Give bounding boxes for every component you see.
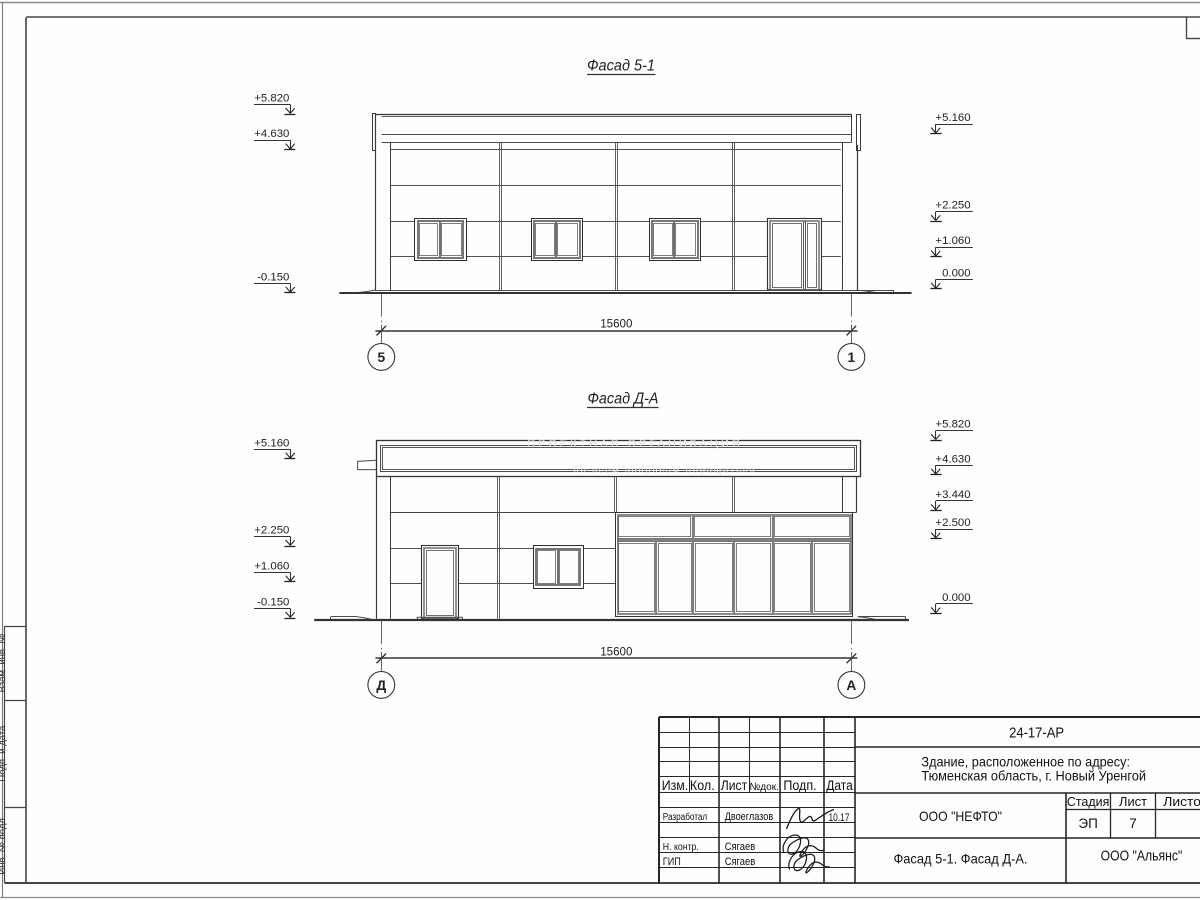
svg-text:ПРОЕКТНАЯ ОРГАНИЗАЦИЯ: ПРОЕКТНАЯ ОРГАНИЗАЦИЯ	[527, 438, 743, 450]
svg-text:0.000: 0.000	[942, 592, 971, 604]
svg-text:+2.500: +2.500	[935, 517, 970, 529]
svg-text:по всем вопросам обращаться: по всем вопросам обращаться	[574, 465, 757, 475]
svg-text:ООО "Альянс": ООО "Альянс"	[1101, 848, 1183, 864]
svg-text:ЭП: ЭП	[1078, 816, 1097, 831]
svg-text:+5.160: +5.160	[935, 112, 970, 124]
svg-text:№док.: №док.	[749, 781, 779, 793]
svg-text:Разработал: Разработал	[663, 811, 708, 823]
svg-text:1: 1	[848, 350, 856, 365]
svg-text:ГИП: ГИП	[663, 856, 681, 868]
svg-text:Инв. № подл.: Инв. № подл.	[0, 815, 8, 874]
svg-text:Фасад Д-А: Фасад Д-А	[588, 391, 659, 408]
svg-text:+2.250: +2.250	[935, 200, 970, 212]
svg-text:А: А	[846, 678, 856, 693]
svg-text:Дата: Дата	[826, 778, 853, 793]
svg-text:15600: 15600	[600, 318, 632, 331]
svg-text:0.000: 0.000	[942, 268, 971, 280]
svg-text:Д: Д	[376, 678, 386, 693]
svg-text:+2.250: +2.250	[254, 525, 289, 537]
svg-text:Кол.: Кол.	[690, 778, 715, 793]
svg-text:Лист: Лист	[721, 778, 748, 793]
svg-text:Двоеглазов: Двоеглазов	[725, 811, 774, 823]
svg-text:+4.630: +4.630	[254, 128, 289, 140]
svg-text:24-17-АР: 24-17-АР	[1009, 726, 1064, 742]
svg-text:+5.160: +5.160	[254, 437, 289, 449]
svg-text:+4.630: +4.630	[935, 453, 970, 465]
svg-text:Листов: Листов	[1163, 794, 1200, 809]
svg-text:ООО "НЕФТО": ООО "НЕФТО"	[919, 808, 1002, 824]
svg-text:Н. контр.: Н. контр.	[663, 842, 699, 853]
svg-text:5: 5	[377, 350, 385, 365]
svg-text:15600: 15600	[600, 645, 632, 658]
svg-text:+1.060: +1.060	[935, 235, 970, 247]
svg-text:+1.060: +1.060	[254, 560, 289, 572]
svg-text:Подп.: Подп.	[783, 778, 816, 793]
svg-text:-0.150: -0.150	[257, 271, 289, 283]
svg-text:Тюменская область, г. Новый Ур: Тюменская область, г. Новый Уренгой	[921, 767, 1146, 783]
svg-text:-0.150: -0.150	[257, 597, 289, 609]
svg-text:+5.820: +5.820	[935, 419, 970, 431]
svg-text:Сягаев: Сягаев	[725, 841, 756, 853]
svg-text:10.17: 10.17	[829, 812, 850, 824]
svg-text:+5.820: +5.820	[254, 93, 289, 105]
svg-text:Фасад 5-1. Фасад Д-А.: Фасад 5-1. Фасад Д-А.	[894, 850, 1028, 866]
svg-text:Фасад 5-1: Фасад 5-1	[587, 58, 655, 75]
svg-text:Лист: Лист	[1119, 794, 1147, 809]
svg-text:Изм.: Изм.	[662, 778, 689, 793]
svg-text:+3.440: +3.440	[935, 489, 970, 501]
svg-text:Подп. и дата: Подп. и дата	[0, 725, 8, 782]
svg-text:7: 7	[1129, 816, 1137, 831]
svg-text:Взам. инв. №: Взам. инв. №	[0, 634, 8, 693]
svg-text:Стадия: Стадия	[1067, 794, 1110, 809]
svg-text:Сягаев: Сягаев	[725, 856, 756, 868]
